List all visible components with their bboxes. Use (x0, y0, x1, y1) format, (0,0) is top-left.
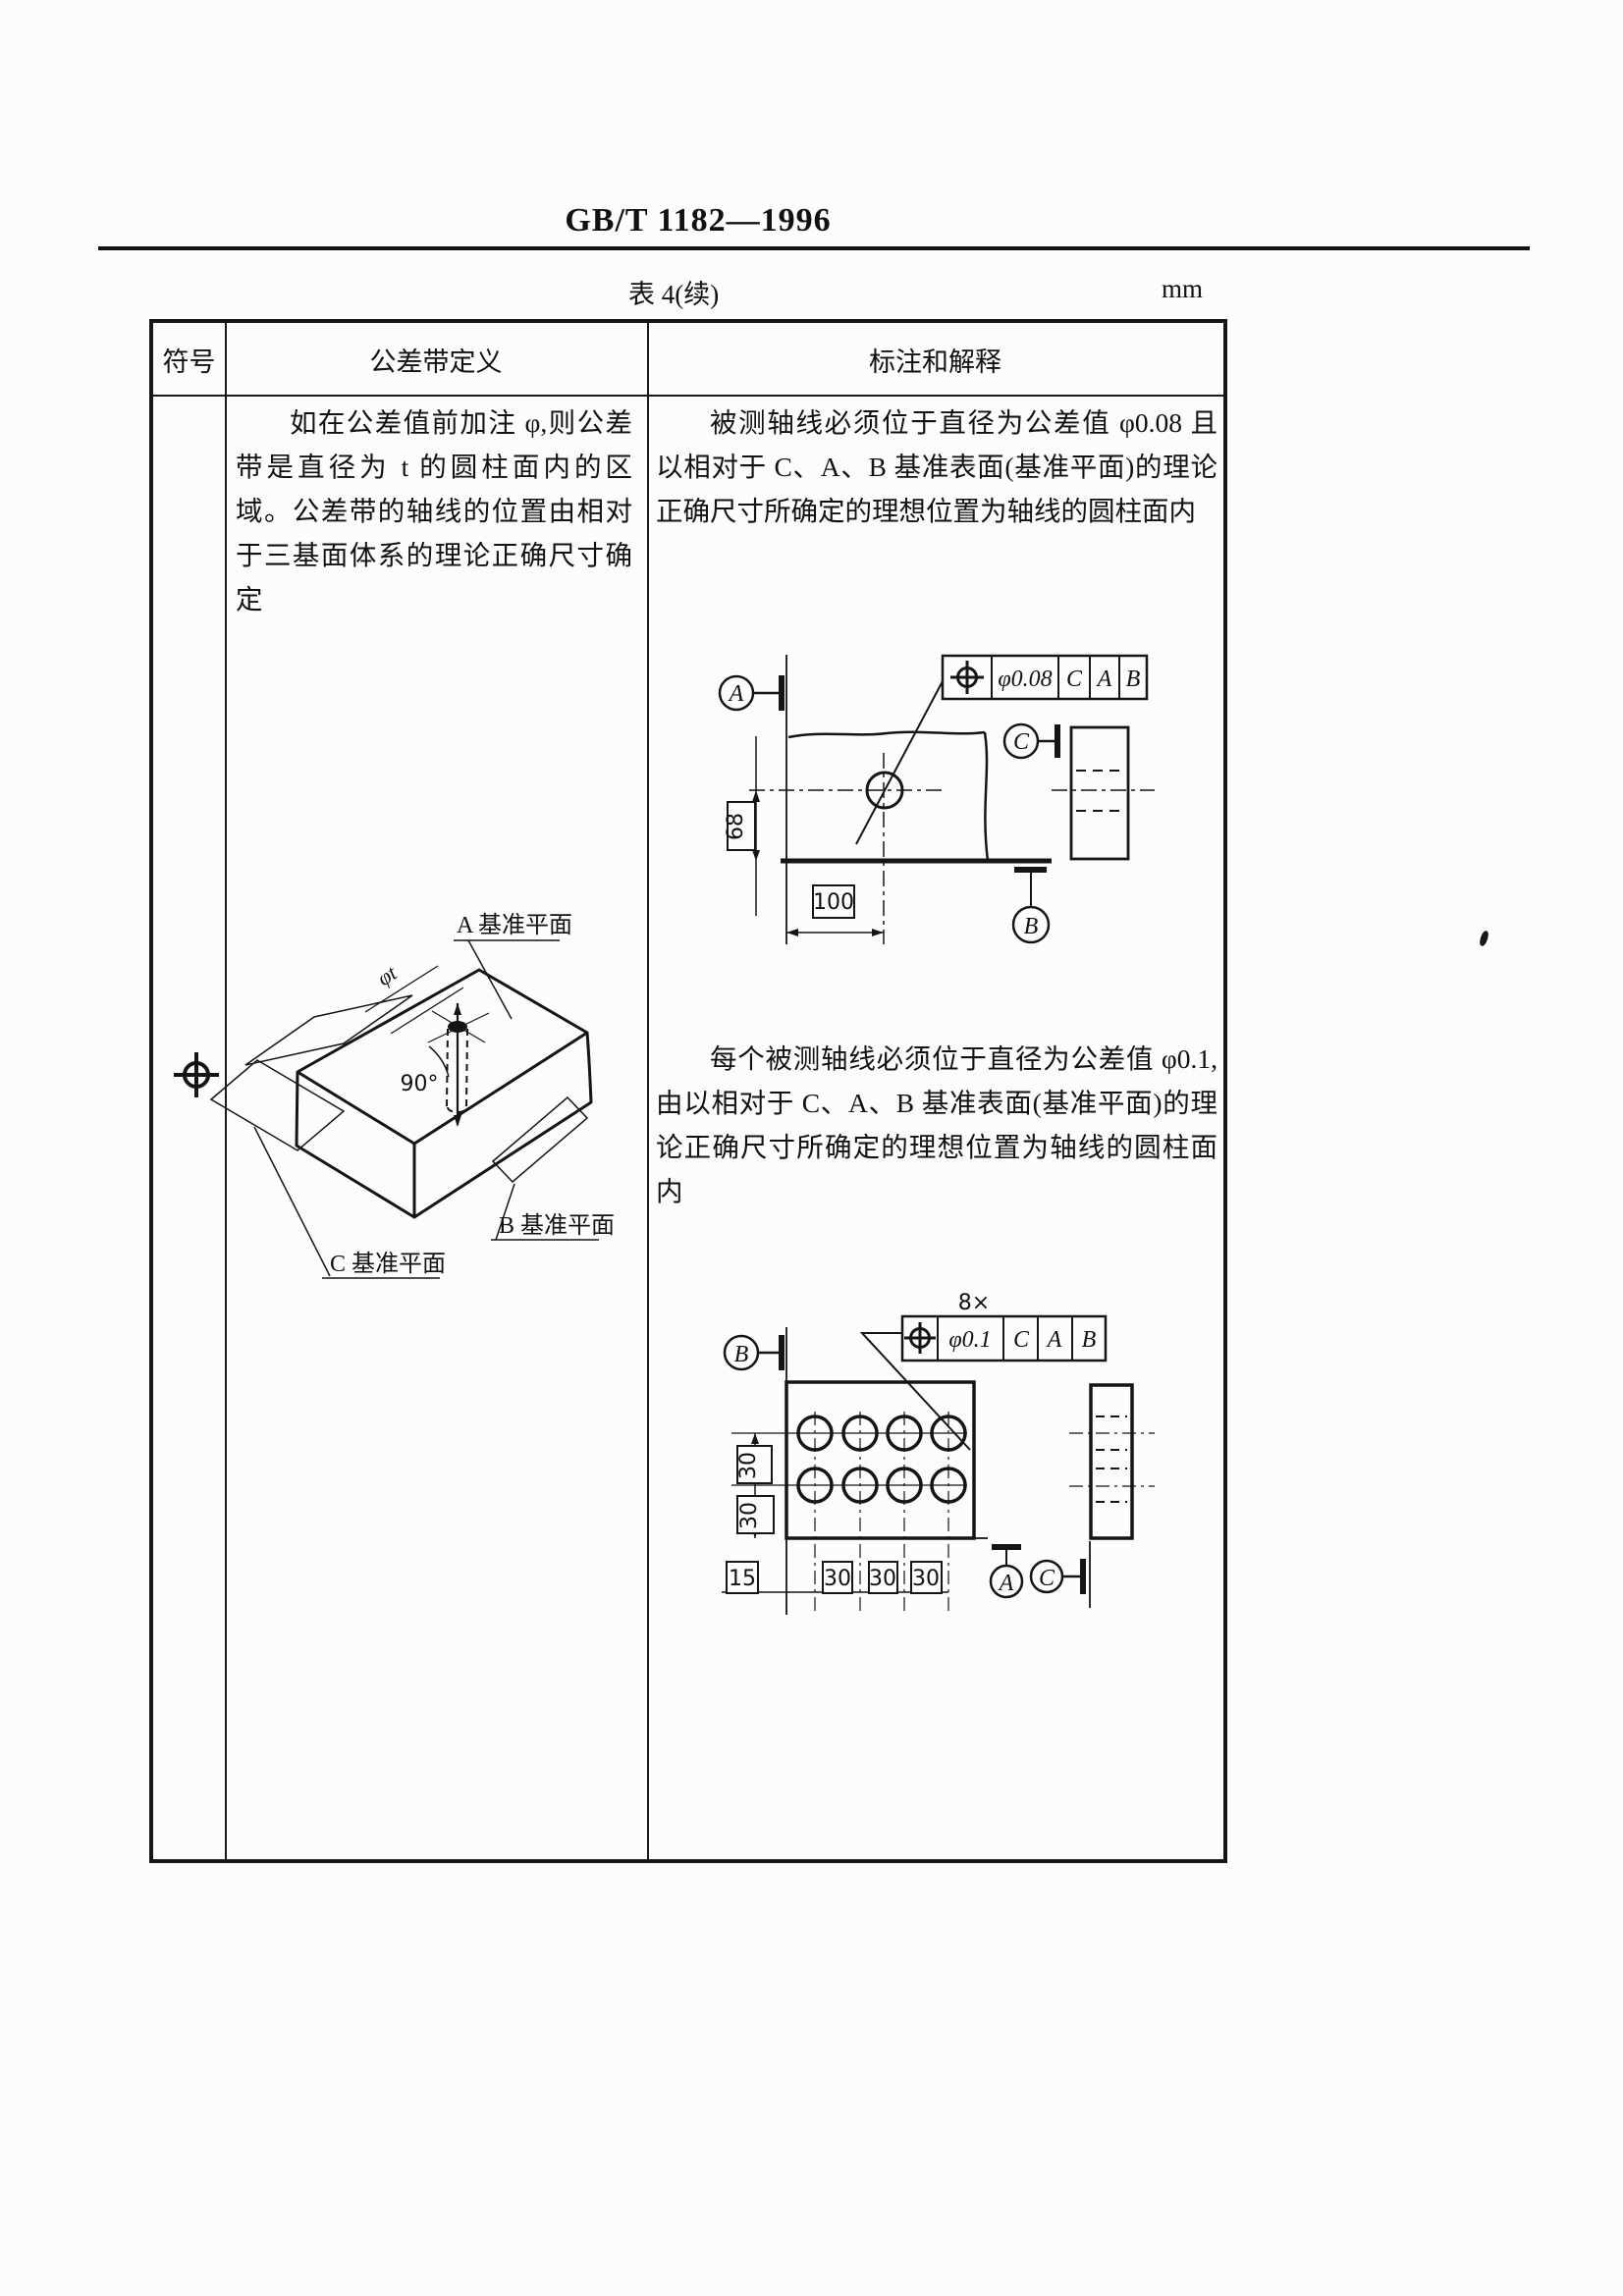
fcf-datum-1: C (1066, 667, 1083, 692)
definition-text: 如在公差值前加注 φ,则公差带是直径为 t 的圆柱面内的区域。公差带的轴线的位置… (236, 400, 632, 621)
holes (798, 1416, 965, 1502)
phi-t-callout: φt (365, 960, 463, 1034)
fcf-datum-3: B (1126, 667, 1141, 692)
dim-h3: 30 (869, 1567, 896, 1591)
header-definition: 公差带定义 (225, 323, 647, 397)
datum-a-plane-label: A 基准平面 (454, 912, 572, 1019)
scan-mark (1479, 930, 1490, 946)
svg-text:A 基准平面: A 基准平面 (457, 912, 572, 938)
datum-c-flag: C (1031, 1559, 1083, 1594)
feature-control-frame-1: φ0.08 C A B (943, 656, 1147, 699)
fcf-tolerance: φ0.08 (998, 667, 1052, 692)
datum-b-label: B (734, 1342, 749, 1367)
hole-count: 8× (958, 1291, 990, 1315)
datum-b-label: B (1024, 914, 1039, 939)
dim-h1: 15 (729, 1567, 756, 1591)
diagram-3d: φt 90° A 基准平面 B 基准平面 C 基准平面 (177, 903, 638, 1291)
dim-height: 68 (724, 813, 748, 840)
datum-c-flag: C (1004, 724, 1057, 758)
dimension-row-bottom: 15 30 30 30 (722, 1562, 948, 1593)
svg-text:C 基准平面: C 基准平面 (330, 1251, 446, 1277)
datum-plane-c (211, 1060, 344, 1150)
datum-b-plane-label: B 基准平面 (491, 1184, 615, 1240)
table-caption: 表 4(续) (628, 273, 719, 311)
header-symbol: 符号 (153, 323, 225, 397)
document-page: GB/T 1182—1996 表 4(续) mm 符号 公差带定义 标注和解释 … (0, 0, 1623, 2296)
datum-a-label: A (728, 681, 744, 707)
dim-v1: 30 (736, 1452, 761, 1479)
fcf-datum-2: A (1096, 667, 1112, 692)
phi-t-label: φt (372, 960, 402, 990)
fcf-datum-1: C (1013, 1327, 1030, 1353)
annotation-text-2: 每个被测轴线必须位于直径为公差值 φ0.1,由以相对于 C、A、B 基准表面(基… (656, 1037, 1217, 1213)
datum-a-flag: A (720, 675, 782, 711)
angle-label: 90° (401, 1072, 439, 1096)
dimension-100: 100 (786, 885, 884, 936)
page-title: GB/T 1182—1996 (404, 202, 993, 240)
tolerance-cylinder (428, 1003, 489, 1127)
header-annotation: 标注和解释 (647, 323, 1223, 397)
datum-b-flag: B (725, 1335, 782, 1370)
annotation-text-1: 被测轴线必须位于直径为公差值 φ0.08 且以相对于 C、A、B 基准表面(基准… (656, 400, 1217, 533)
dimension-68: 68 (724, 736, 760, 916)
svg-text:B 基准平面: B 基准平面 (499, 1212, 615, 1239)
dim-h2: 30 (824, 1567, 851, 1591)
datum-a-label: A (998, 1571, 1014, 1596)
fcf-datum-3: B (1082, 1327, 1097, 1353)
datum-c-plane-label: C 基准平面 (254, 1127, 446, 1278)
header-rule (98, 246, 1530, 250)
part-side-view (1052, 727, 1155, 859)
datum-plane-b (493, 1097, 587, 1182)
column-divider-2 (647, 323, 649, 1859)
feature-control-frame-2: φ0.1 C A B (902, 1316, 1106, 1361)
datum-c-label: C (1039, 1566, 1055, 1591)
fcf-datum-2: A (1046, 1327, 1062, 1353)
fcf-tolerance: φ0.1 (948, 1327, 991, 1353)
block-outline (297, 970, 591, 1217)
datum-c-label: C (1013, 729, 1030, 755)
drawing-1: A φ0.08 C (687, 618, 1188, 982)
drawing-2: 8× φ0.1 C A B B (687, 1276, 1188, 1634)
datum-a-flag: A (991, 1547, 1022, 1597)
unit-label: mm (1162, 274, 1203, 304)
dim-width: 100 (813, 890, 854, 915)
fcf-leader (856, 681, 943, 844)
dim-h4: 30 (912, 1567, 940, 1591)
datum-b-flag: B (1013, 870, 1049, 942)
angle-annotation: 90° (401, 1046, 450, 1096)
dim-v2: 30 (737, 1502, 762, 1529)
